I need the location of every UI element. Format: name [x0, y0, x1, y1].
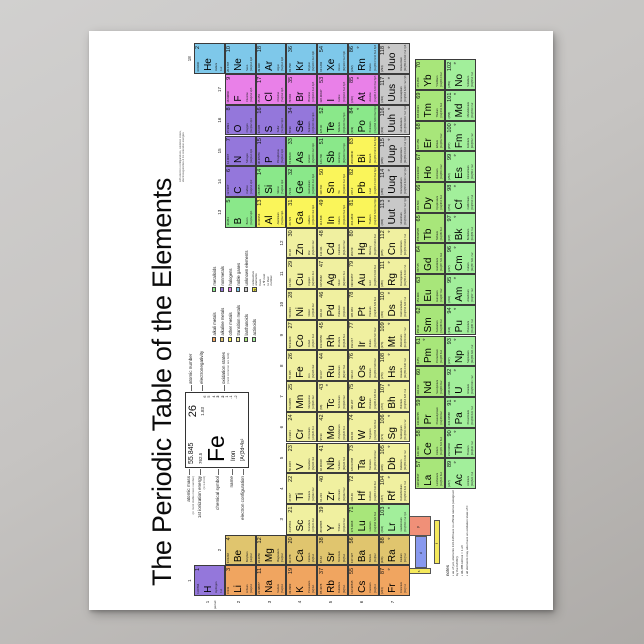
element-name: Zinc: [308, 250, 311, 255]
element-name: Selenium: [308, 121, 311, 132]
element-name: Tellurium: [338, 122, 341, 132]
element-cell-Ga: 69.72331GaGallium[Ar]3d10 4s2 4p1: [286, 197, 317, 228]
element-cell-Eu: 151.96463EuEuropium[Xe]4f7 6s2: [415, 274, 446, 305]
atomic-number: 91: [447, 400, 453, 406]
element-cell-C: 12.01076CCarbon[He]2s2 2p2: [225, 166, 256, 197]
element-cell-No: (259)102☢NoNobelium[Rn]5f14 7s2: [445, 59, 476, 90]
electron-configuration: [Xe]4f13 6s2: [440, 103, 443, 118]
element-symbol: Kr: [295, 61, 306, 71]
element-name: Thulium: [436, 108, 439, 117]
radioactive-icon: ☢: [387, 414, 391, 417]
callout-1st-ionization-energy: 1st ionization energy(in kJ/mol): [197, 476, 206, 580]
element-symbol: Sr: [326, 552, 337, 562]
atomic-number: 58: [416, 430, 422, 436]
legend-swatch: [212, 287, 217, 292]
callout-line: [243, 469, 244, 475]
electron-configuration: [Ar]3d7 4s2: [312, 334, 315, 347]
element-name: Nickel: [308, 309, 311, 316]
atomic-mass: (237): [447, 357, 451, 364]
block-letter-f: f: [435, 543, 439, 544]
element-name: Ununhexium: [400, 118, 403, 133]
element-cell-Ar: 39.94818ArArgon[Ne]3s2 3p6: [256, 43, 287, 74]
atomic-mass: (294): [380, 65, 384, 72]
electron-configuration: [Xe]5d1 6s2: [440, 472, 443, 486]
atomic-number: 24: [288, 414, 294, 420]
element-name: Thorium: [467, 446, 470, 456]
atomic-mass: (270): [380, 372, 384, 379]
element-name: Hafnium: [369, 491, 372, 501]
element-cell-Uup: (288)115☢UupUnunpentium[Rn]5f14 6d10 7s2…: [379, 136, 410, 167]
element-cell-S: 32.06516SSulfur[Ne]3s2 3p4: [256, 105, 287, 136]
atomic-mass: 137.327: [350, 553, 354, 563]
atomic-number: 9: [226, 77, 232, 80]
electron-configuration: [Rn]6d2 7s2: [471, 441, 474, 455]
element-cell-Pt: 195.08478PtPlatinum[Xe]4f14 5d9 6s1: [348, 289, 379, 320]
electron-configuration: [Rn]5f14 6d10 7s2 7p2: [404, 167, 407, 193]
atomic-number: 69: [416, 93, 422, 99]
element-symbol: Cm: [454, 255, 465, 271]
atomic-mass: 192.217: [350, 338, 354, 348]
element-name: Ununoctium: [400, 57, 403, 71]
subtitle-line-2: electronegativities & 1st ionization ene…: [182, 130, 185, 182]
atomic-mass: 39.948: [257, 63, 261, 72]
electron-configuration: [Kr]4d2 5s2: [343, 487, 346, 500]
atomic-number: 106: [380, 414, 386, 423]
element-cell-Tc: (98)43☢TcTechnetium[Kr]4d5 5s2: [317, 381, 348, 412]
element-cell-Os: 190.2376OsOsmium[Xe]4f14 5d6 6s2: [348, 350, 379, 381]
atomic-number: 104: [380, 476, 386, 485]
atomic-mass: (251): [447, 204, 451, 211]
element-cell-Lu: 174.966871LuLutetium[Xe]4f14 5d1 6s2: [348, 504, 379, 535]
atomic-number: 22: [288, 476, 294, 482]
radioactive-icon: ☢: [387, 476, 391, 479]
element-symbol: Ga: [295, 211, 306, 224]
electron-configuration: 1s2: [220, 67, 223, 71]
legend-label: unknown elements: [244, 251, 249, 286]
atomic-mass: 183.84: [350, 432, 354, 441]
atomic-number: 27: [288, 322, 294, 328]
atomic-mass: (262): [380, 526, 384, 533]
atomic-number: 44: [319, 353, 325, 359]
electron-configuration: [Ne]3s2: [281, 553, 284, 562]
atomic-mass: (209): [350, 127, 354, 134]
legend-label: alkali metals: [212, 312, 217, 335]
callout-electron-configuration: electron configuration: [240, 476, 245, 580]
periodic-table-poster: The Periodic Table of the Elements with …: [89, 31, 553, 610]
element-name: Lithium: [246, 584, 249, 592]
atomic-number: 38: [319, 537, 325, 543]
element-symbol: Bh: [387, 396, 398, 408]
element-name: Copernicium: [400, 241, 403, 256]
atomic-mass: 65.38: [288, 249, 292, 256]
element-name: Palladium: [338, 305, 341, 316]
element-symbol: Rb: [326, 580, 337, 593]
element-symbol: Ca: [295, 549, 306, 562]
atomic-number: 99: [447, 154, 453, 160]
element-symbol: Gd: [423, 258, 434, 271]
element-symbol: Cf: [454, 200, 465, 210]
radioactive-icon: ☢: [325, 384, 329, 387]
radioactive-icon: ☢: [453, 338, 457, 341]
atomic-mass: 207.2: [350, 188, 354, 195]
atomic-mass: (267): [380, 495, 384, 502]
atomic-mass: 132.90545: [350, 581, 354, 594]
featured-element-symbol: Fe: [203, 435, 230, 462]
element-symbol: O: [233, 125, 244, 133]
atomic-mass: 231.03588: [447, 412, 451, 425]
element-symbol: Md: [454, 104, 465, 118]
atomic-mass: 101.07: [319, 370, 323, 379]
atomic-mass: 91.224: [319, 493, 323, 502]
atomic-mass: (293): [380, 127, 384, 134]
atomic-mass: 22.98977: [257, 582, 261, 594]
element-name: Iron: [308, 373, 311, 377]
element-symbol: Br: [295, 92, 306, 102]
atomic-number: 36: [288, 46, 294, 52]
element-symbol: Fe: [295, 366, 306, 378]
atomic-mass: (210): [350, 96, 354, 103]
electron-configuration: [Rn]5f14 6d10 7s2 7p3: [404, 137, 407, 163]
atomic-mass: (281): [380, 311, 384, 318]
electron-configuration: [Xe]4f5 6s2: [440, 350, 443, 363]
electron-configuration: [Ar]3d10 4s2 4p4: [312, 113, 315, 133]
element-symbol: Tm: [423, 103, 434, 117]
element-cell-Mn: 54.9380525MnManganese[Ar]3d5 4s2: [286, 381, 317, 412]
element-name: Praseodymium: [436, 407, 439, 424]
element-name: Meitnerium: [400, 334, 403, 347]
oxidation-state-value: -2: [234, 396, 238, 399]
element-cell-He: 4.002602HeHelium1s2: [194, 43, 225, 74]
period-axis-label: period: [213, 601, 217, 609]
block-letter-s: s: [417, 571, 421, 573]
element-name: Arsenic: [308, 154, 311, 163]
element-cell-Cs: 132.9054555CsCaesium[Xe]6s1: [348, 565, 379, 596]
electron-configuration: [Rn]5f14 6d10 7s2 7p1: [404, 198, 407, 224]
element-cell-Co: 58.9332027CoCobalt[Ar]3d7 4s2: [286, 320, 317, 351]
atomic-number: 52: [319, 107, 325, 113]
legend-label: nonmetals: [220, 266, 225, 285]
electron-configuration: [Rn]5f14 6d10 7s2: [404, 234, 407, 255]
atomic-number: 54: [319, 46, 325, 52]
electron-configuration: 1s1: [220, 589, 223, 593]
group-number-10: 10: [279, 289, 284, 320]
callout-line: [191, 385, 192, 391]
element-name: Chromium: [308, 427, 311, 439]
electron-configuration: [He]2s2 2p5: [250, 88, 253, 102]
element-cell-Nd: 144.24260NdNeodymium[Xe]4f4 6s2: [415, 366, 446, 397]
electron-configuration: [Kr]4d7 5s1: [343, 365, 346, 378]
element-cell-Ds: (281)110☢DsDarmstadtium[Rn]5f14 6d9 7s1: [379, 289, 410, 320]
element-symbol: Bi: [357, 154, 368, 163]
element-cell-Mo: 95.9642MoMolybdenum[Kr]4d5 5s1: [317, 412, 348, 443]
atomic-mass: (285): [380, 250, 384, 257]
element-cell-P: 30.9737615PPhosphorus[Ne]3s2 3p3: [256, 136, 287, 167]
electron-configuration: [Rn]5f4 6d1 7s2: [471, 345, 474, 363]
element-symbol: V: [295, 463, 306, 470]
element-cell-N: 14.00677NNitrogen[He]2s2 2p3: [225, 136, 256, 167]
electron-configuration: [Kr]4d10 5s2 5p1: [343, 205, 346, 225]
atomic-mass: 79.904: [288, 94, 292, 103]
electron-configuration: [Xe]4f14 6s2: [440, 72, 443, 87]
element-cell-Hs: (270)108☢HsHassium[Rn]5f14 6d6 7s2: [379, 350, 410, 381]
atomic-mass: 190.23: [350, 370, 354, 379]
atomic-mass: 14.0067: [226, 154, 230, 164]
element-name: Thallium: [369, 215, 372, 225]
element-symbol: Am: [454, 287, 465, 302]
element-name: Tungsten: [369, 429, 372, 440]
electron-configuration: [Rn]5f14 6d5 7s2: [404, 389, 407, 409]
callout-line: [200, 469, 201, 475]
rotated-poster-canvas: The Periodic Table of the Elements with …: [89, 31, 553, 610]
element-symbol: Te: [326, 122, 337, 133]
electron-configuration: [Xe]4f14 5d10 6s2 6p1: [374, 198, 377, 224]
electron-configuration: [Ar]3d6 4s2: [312, 365, 315, 378]
atomic-mass: 140.90765: [416, 412, 420, 425]
element-name: Terbium: [436, 231, 439, 240]
note-item: • 96.485 kJ/mol = 1 eV: [460, 488, 464, 576]
legend-label: other metals: [228, 312, 233, 335]
radioactive-icon: ☢: [356, 107, 360, 110]
element-name: Chlorine: [277, 92, 280, 102]
atomic-mass: 208.98040: [350, 151, 354, 164]
electron-configuration: [Kr]4d5 5s1: [343, 426, 346, 439]
electron-configuration: [Rn]5f11 7s2: [471, 164, 474, 179]
element-symbol: In: [326, 216, 337, 224]
element-name: Seaborgium: [400, 425, 403, 439]
element-cell-As: 74.9216033AsArsenic[Ar]3d10 4s2 4p3: [286, 136, 317, 167]
element-symbol: Cs: [357, 581, 368, 593]
element-cell-Bi: 208.9804083BiBismuth[Xe]4f14 5d10 6s2 6p…: [348, 136, 379, 167]
atomic-number: 16: [257, 107, 263, 113]
atomic-mass: (244): [447, 327, 451, 334]
legend-swatch: [220, 287, 225, 292]
element-name: Cerium: [436, 447, 439, 455]
element-symbol: No: [454, 74, 465, 87]
electron-configuration: [Xe]4f14 5d2 6s2: [374, 481, 377, 501]
element-name: Actinium: [467, 476, 470, 486]
atomic-mass: 20.1797: [226, 62, 230, 72]
element-cell-Er: 167.25968ErErbium[Xe]4f12 6s2: [415, 121, 446, 152]
notes-items: • as of yet, elements 113-118 have no of…: [451, 488, 469, 576]
atomic-number: 19: [288, 568, 294, 574]
atomic-number: 66: [416, 185, 422, 191]
atomic-mass: (289): [380, 188, 384, 195]
element-symbol: Mt: [387, 336, 398, 347]
electron-configuration: [Xe]4f11 6s2: [440, 164, 443, 178]
element-cell-Hg: 200.5980HgMercury[Xe]4f14 5d10 6s2: [348, 228, 379, 259]
element-symbol: Ra: [387, 549, 398, 562]
radioactive-icon: ☢: [453, 215, 457, 218]
atomic-mass: (272): [380, 403, 384, 410]
radioactive-icon: ☢: [387, 322, 391, 325]
element-name: Ununquadium: [400, 178, 403, 194]
electron-configuration: [Kr]5s1: [343, 585, 346, 593]
radioactive-icon: ☢: [453, 93, 457, 96]
electron-configuration: [Ar]4s1: [312, 585, 315, 593]
element-symbol: Ti: [295, 493, 306, 501]
element-name: Astatine: [369, 92, 372, 101]
element-cell-F: 18.998409FFluorine[He]2s2 2p5: [225, 74, 256, 105]
element-name: Darmstadtium: [400, 300, 403, 316]
element-cell-Se: 78.9634SeSelenium[Ar]3d10 4s2 4p4: [286, 105, 317, 136]
atomic-mass: 58.93320: [288, 337, 292, 349]
electron-configuration: [He]2s2: [250, 553, 253, 562]
element-cell-Md: (258)101☢MdMendelevium[Rn]5f13 7s2: [445, 90, 476, 121]
atomic-number: 50: [319, 169, 325, 175]
element-name: Iodine: [338, 95, 341, 102]
atomic-number: 84: [349, 107, 355, 113]
element-cell-Cr: 51.996124CrChromium[Ar]3d5 4s1: [286, 412, 317, 443]
atomic-mass: 47.867: [288, 493, 292, 502]
element-cell-Ho: 164.9303267HoHolmium[Xe]4f11 6s2: [415, 151, 446, 182]
radioactive-legend-swatch: ☢: [252, 287, 257, 292]
atomic-number: 117: [380, 77, 386, 86]
element-cell-Mg: 24.305012MgMagnesium[Ne]3s2: [256, 535, 287, 566]
group-number-4: 4: [279, 473, 284, 504]
electron-configuration: [Xe]4f14 5d3 6s2: [374, 450, 377, 470]
element-name: Neptunium: [467, 350, 470, 363]
electron-configuration: [Ar]3d8 4s2: [312, 303, 315, 316]
electron-configuration: [Rn]7s1: [404, 584, 407, 593]
element-symbol: Pr: [423, 414, 434, 424]
legend-swatch: [244, 287, 249, 292]
atomic-number: 115: [380, 138, 386, 147]
atomic-mass: (257): [447, 143, 451, 150]
element-name: Mercury: [369, 246, 372, 255]
atomic-mass: 92.90638: [319, 459, 323, 471]
group-number-13: 13: [217, 197, 222, 228]
atomic-mass: 204.3833: [350, 214, 354, 226]
atomic-number: 12: [257, 537, 263, 543]
atomic-number: 111: [380, 261, 386, 270]
electron-configuration: [Ar]4s2: [312, 554, 315, 562]
element-symbol: Hg: [357, 242, 368, 255]
atomic-number: 93: [447, 338, 453, 344]
atomic-mass: (288): [380, 157, 384, 164]
atomic-mass: 138.90547: [416, 474, 420, 487]
atomic-number: 79: [349, 261, 355, 267]
electron-configuration: [Rn]5f14 6d10 7s2 7p4: [404, 106, 407, 132]
radioactive-icon: ☢: [387, 77, 391, 80]
atomic-mass: (145): [416, 357, 420, 364]
electron-configuration: [Xe]4f14 5d4 6s2: [374, 420, 377, 440]
element-name: Calcium: [308, 553, 311, 562]
atomic-mass: 4.00260: [196, 62, 200, 72]
element-name: Polonium: [369, 121, 372, 132]
element-cell-Sn: 118.71050SnTin[Kr]4d10 5s2 5p2: [317, 166, 348, 197]
element-symbol: C: [233, 186, 244, 193]
element-cell-Bh: (272)107☢BhBohrium[Rn]5f14 6d5 7s2: [379, 381, 410, 412]
element-name: Niobium: [338, 461, 341, 471]
element-symbol: Ru: [326, 365, 337, 378]
atomic-number: 49: [319, 200, 325, 206]
element-name: Osmium: [369, 368, 372, 378]
atomic-number: 98: [447, 185, 453, 191]
element-name: Fluorine: [246, 92, 249, 101]
element-symbol: U: [454, 386, 465, 393]
atomic-mass: 85.4678: [319, 584, 323, 594]
element-symbol: Pm: [423, 348, 434, 363]
element-cell-Cu: 63.54629CuCopper[Ar]3d10 4s1: [286, 258, 317, 289]
atomic-mass: 50.9415: [288, 461, 292, 471]
element-symbol: Sn: [326, 181, 337, 193]
electron-configuration: [Xe]4f14 5d10 6s1: [374, 265, 377, 286]
electron-configuration: [Rn]5f14 6d10 7s2 7p6: [404, 45, 407, 71]
element-symbol: Ce: [423, 442, 434, 455]
element-cell-Pu: (244)94☢PuPlutonium[Rn]5f6 7s2: [445, 305, 476, 336]
callout-atomic-mass: atomic mass(or most stable mass number): [186, 476, 195, 580]
atomic-number: 72: [349, 476, 355, 482]
element-symbol: Zn: [295, 243, 306, 255]
element-symbol: B: [233, 218, 244, 225]
element-symbol: Ds: [387, 304, 398, 316]
atomic-mass: (258): [447, 112, 451, 119]
element-symbol: Nd: [423, 381, 434, 394]
note-item: • as of yet, elements 113-118 have no of…: [451, 488, 459, 576]
atomic-number: 67: [416, 154, 422, 160]
element-cell-Mt: (276)109☢MtMeitnerium[Rn]5f14 6d7 7s2: [379, 320, 410, 351]
radioactive-icon: ☢: [387, 507, 391, 510]
radioactive-icon: ☢: [387, 384, 391, 387]
element-cell-Am: (243)95☢AmAmericium[Rn]5f7 7s2: [445, 274, 476, 305]
element-symbol: Ir: [357, 341, 368, 347]
electron-configuration: [Xe]4f6 6s2: [440, 319, 443, 332]
element-name: Cadmium: [338, 244, 341, 255]
element-symbol: Np: [454, 350, 465, 363]
element-cell-Cm: (247)96☢CmCurium[Rn]5f7 6d1 7s2: [445, 243, 476, 274]
element-cell-Kr: 83.79836KrKrypton[Ar]3d10 4s2 4p6: [286, 43, 317, 74]
radioactive-icon: ☢: [387, 537, 391, 540]
electron-configuration: [Ne]3s2 3p1: [281, 210, 284, 224]
electron-configuration: [Rn]5f14 6d2 7s2: [404, 481, 407, 501]
radioactive-icon: ☢: [453, 461, 457, 464]
element-cell-Re: 186.20775ReRhenium[Xe]4f14 5d5 6s2: [348, 381, 379, 412]
electron-configuration: [Rn]5f14 7s2: [471, 72, 474, 87]
electron-configuration: [Kr]4d5 5s2: [343, 395, 346, 408]
element-symbol: Pd: [326, 304, 337, 316]
element-symbol: Pb: [357, 181, 368, 193]
element-symbol: Ag: [326, 274, 337, 286]
atomic-number: 42: [319, 414, 325, 420]
electron-configuration: [Xe]4f3 6s2: [440, 411, 443, 424]
atomic-mass: (247): [447, 235, 451, 242]
element-name: Strontium: [338, 551, 341, 562]
radioactive-icon: ☢: [453, 307, 457, 310]
radioactive-icon: ☢: [387, 138, 391, 141]
atomic-mass: 186.207: [350, 400, 354, 410]
atomic-mass: 178.49: [350, 493, 354, 502]
callout-atomic-number: atomic number: [188, 354, 193, 384]
element-name: Samarium: [436, 320, 439, 332]
element-cell-Nb: 92.9063841NbNiobium[Kr]4d4 5s1: [317, 443, 348, 474]
radioactive-icon: ☢: [387, 568, 391, 571]
element-symbol: Rn: [357, 58, 368, 71]
element-name: Helium: [215, 63, 218, 71]
element-symbol: Lu: [357, 520, 368, 531]
element-cell-Sm: 150.3662SmSamarium[Xe]4f6 6s2: [415, 305, 446, 336]
atomic-number: 75: [349, 384, 355, 390]
electron-configuration: [Xe]4f14 5d7 6s2: [374, 328, 377, 348]
element-cell-V: 50.941523VVanadium[Ar]3d3 4s2: [286, 443, 317, 474]
atomic-mass: 106.42: [319, 309, 323, 318]
element-name: Holmium: [436, 169, 439, 179]
element-name: Manganese: [308, 395, 311, 409]
element-cell-B: 10.8115BBoron[He]2s2 2p1: [225, 197, 256, 228]
atomic-number: 108: [380, 353, 386, 362]
electron-configuration: [Ar]3d3 4s2: [312, 457, 315, 470]
element-symbol: Eu: [423, 289, 434, 301]
atomic-mass: 63.546: [288, 278, 292, 287]
